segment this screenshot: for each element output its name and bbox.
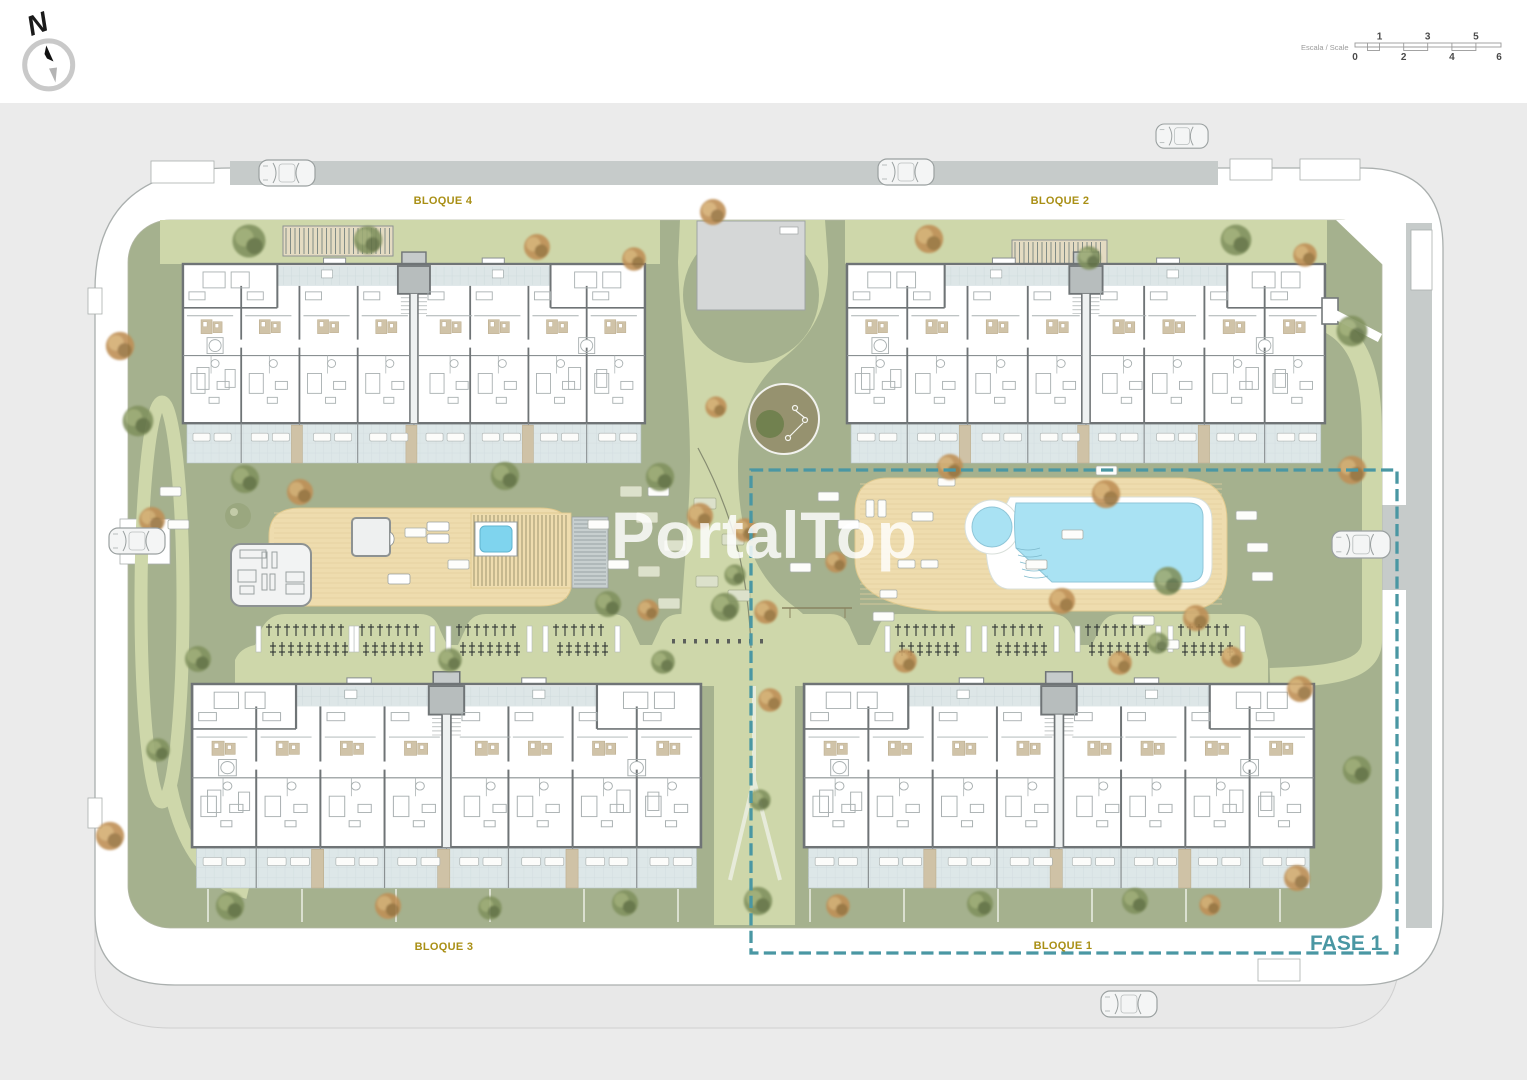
svg-text:3: 3	[1425, 32, 1431, 43]
svg-text:BLOQUE 3: BLOQUE 3	[415, 941, 474, 953]
svg-text:PortalTop: PortalTop	[611, 499, 917, 572]
svg-text:5: 5	[1473, 32, 1479, 43]
svg-text:1: 1	[1377, 32, 1383, 43]
svg-text:BLOQUE 4: BLOQUE 4	[414, 195, 473, 207]
svg-text:2: 2	[1401, 52, 1407, 63]
svg-text:0: 0	[1352, 52, 1358, 63]
svg-text:BLOQUE 1: BLOQUE 1	[1034, 940, 1093, 952]
svg-text:6: 6	[1496, 52, 1502, 63]
svg-text:4: 4	[1449, 52, 1455, 63]
svg-text:BLOQUE 2: BLOQUE 2	[1031, 195, 1090, 207]
svg-text:Escala / Scale: Escala / Scale	[1301, 43, 1349, 52]
svg-text:FASE 1: FASE 1	[1310, 932, 1383, 955]
